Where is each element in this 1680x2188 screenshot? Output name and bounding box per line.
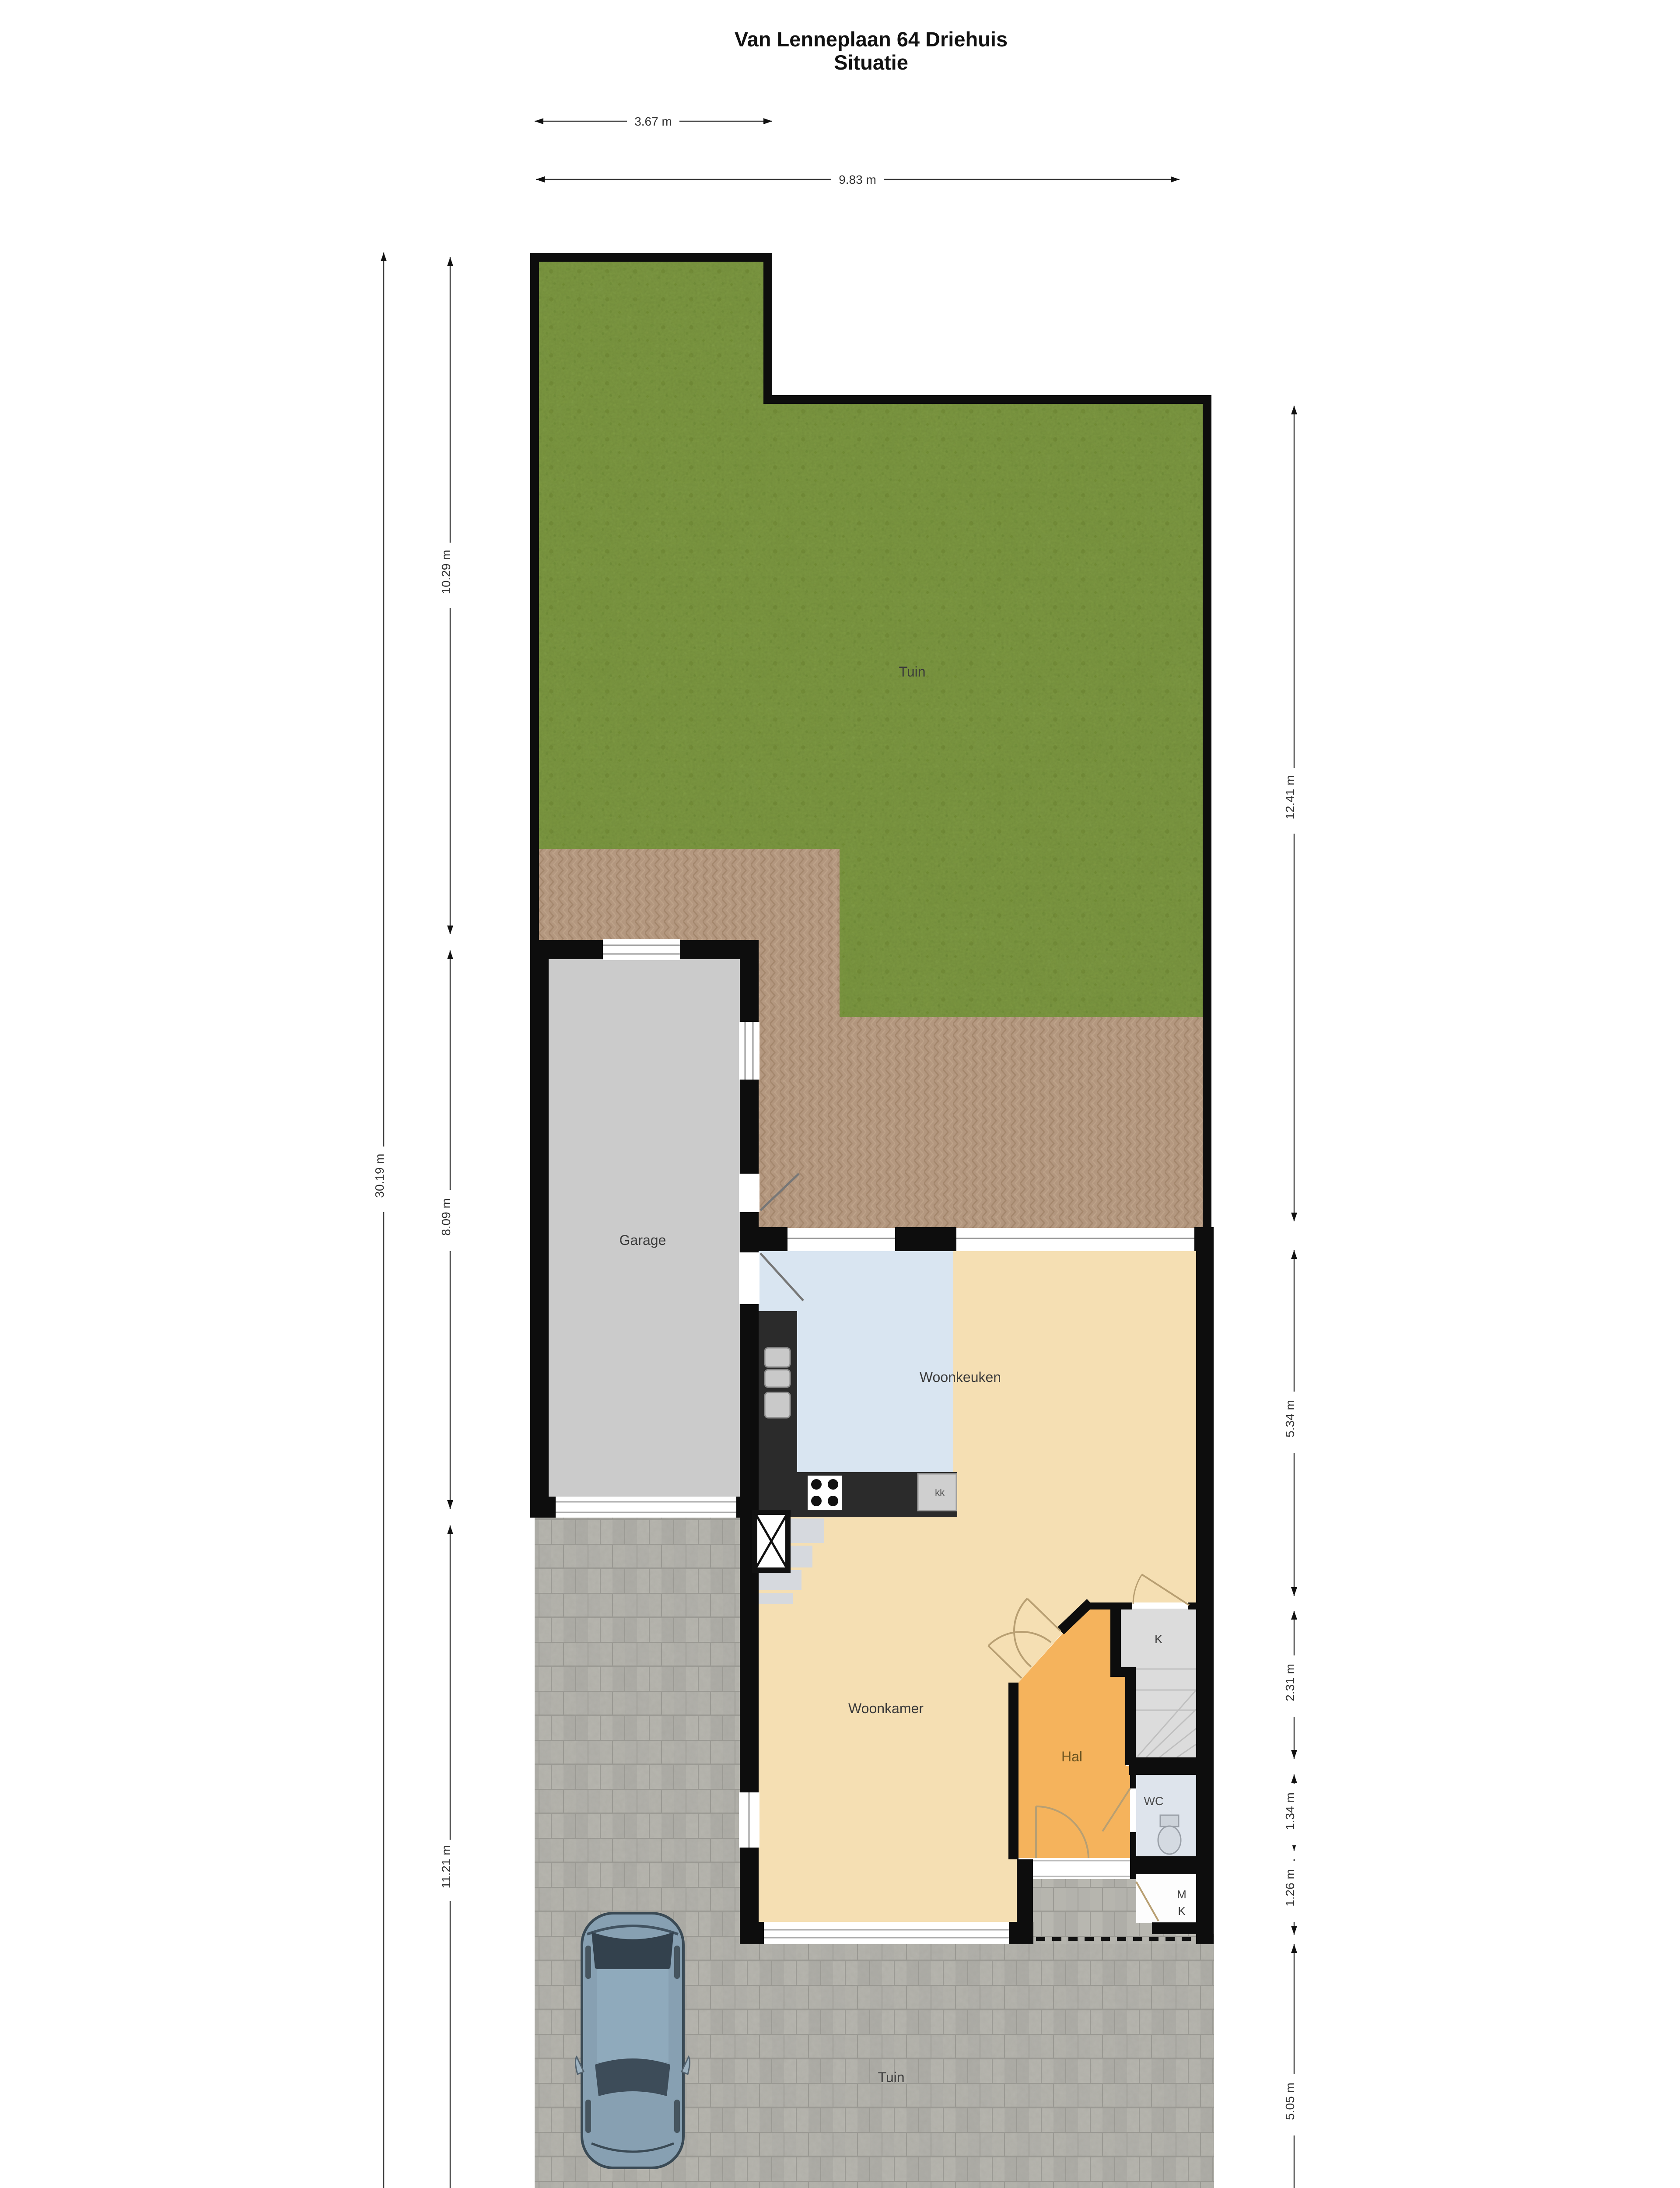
svg-text:Situatie: Situatie [834, 51, 908, 74]
svg-text:M: M [1177, 1888, 1186, 1901]
svg-text:5.34 m: 5.34 m [1283, 1400, 1297, 1438]
svg-text:Van Lenneplaan 64 Driehuis: Van Lenneplaan 64 Driehuis [735, 28, 1008, 51]
svg-text:1.26 m: 1.26 m [1283, 1869, 1297, 1907]
svg-text:1.34 m: 1.34 m [1283, 1792, 1297, 1830]
svg-text:11.21 m: 11.21 m [439, 1845, 453, 1888]
svg-text:10.29 m: 10.29 m [439, 550, 453, 594]
svg-text:3.67 m: 3.67 m [634, 115, 672, 128]
svg-text:Tuin: Tuin [899, 664, 925, 680]
svg-text:2.31 m: 2.31 m [1283, 1664, 1297, 1701]
svg-text:WC: WC [1144, 1795, 1164, 1808]
svg-text:Woonkeuken: Woonkeuken [920, 1369, 1001, 1385]
svg-text:12.41 m: 12.41 m [1283, 775, 1297, 819]
svg-text:Tuin: Tuin [878, 2069, 904, 2085]
svg-text:Hal: Hal [1061, 1749, 1082, 1764]
svg-text:Garage: Garage [619, 1232, 666, 1248]
svg-text:K: K [1155, 1633, 1162, 1646]
svg-text:kk: kk [935, 1487, 945, 1498]
svg-text:8.09 m: 8.09 m [439, 1198, 453, 1236]
svg-text:Woonkamer: Woonkamer [848, 1701, 924, 1716]
svg-text:K: K [1178, 1904, 1186, 1918]
svg-text:5.05 m: 5.05 m [1283, 2083, 1297, 2120]
svg-text:9.83 m: 9.83 m [839, 173, 876, 186]
svg-text:30.19 m: 30.19 m [373, 1154, 386, 1198]
